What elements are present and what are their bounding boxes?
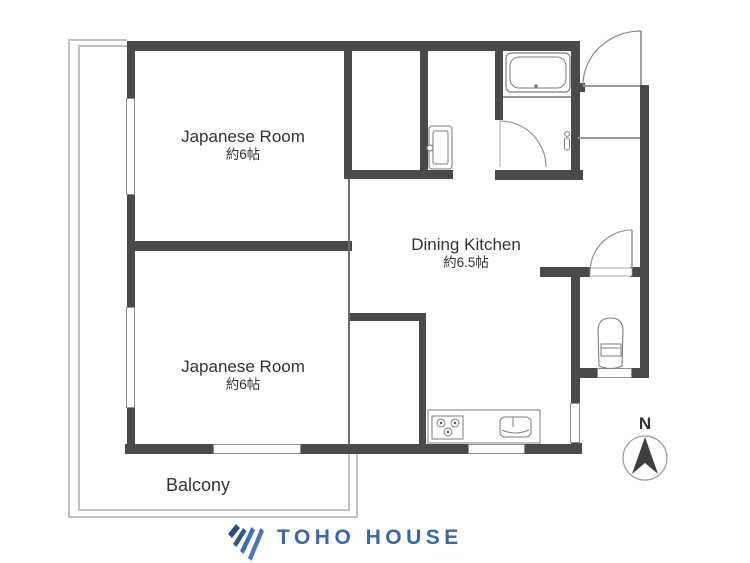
bathtub <box>506 53 570 92</box>
room-label-japanese-room-1: Japanese Room 約6帖 <box>153 127 333 163</box>
washer-faucet <box>427 145 433 151</box>
door-handle-icon <box>565 138 570 150</box>
floor-plan: Japanese Room 約6帖 Japanese Room 約6帖 Dini… <box>0 0 750 563</box>
toilet-bowl <box>598 318 623 369</box>
toilet-door-arc <box>590 230 632 272</box>
toho-wing-icon <box>227 521 269 561</box>
room-name: Dining Kitchen <box>378 235 554 254</box>
fixture-layer <box>0 0 750 563</box>
kitchen-counter <box>428 410 540 443</box>
stove-burner-dot <box>447 431 449 433</box>
bathtub-drain <box>534 84 538 88</box>
room-name: Japanese Room <box>153 127 333 146</box>
stove-burner-dot <box>454 422 456 424</box>
room-area: 約6.5帖 <box>378 254 554 271</box>
room-label-balcony: Balcony <box>166 475 230 496</box>
entrance-door-arc <box>583 31 641 85</box>
room-name: Japanese Room <box>153 357 333 376</box>
door-handle-icon <box>565 132 570 137</box>
room-label-dining-kitchen: Dining Kitchen 約6.5帖 <box>378 235 554 271</box>
room-area: 約6帖 <box>153 146 333 163</box>
room-area: 約6帖 <box>153 376 333 393</box>
stove-burner-dot <box>440 422 442 424</box>
room-label-japanese-room-2: Japanese Room 約6帖 <box>153 357 333 393</box>
toilet-seat <box>601 344 621 356</box>
north-label: N <box>630 414 660 434</box>
toilet-door-opening <box>590 268 632 276</box>
bathroom-door-arc <box>500 121 546 167</box>
logo-text: TOHO HOUSE <box>277 526 463 550</box>
